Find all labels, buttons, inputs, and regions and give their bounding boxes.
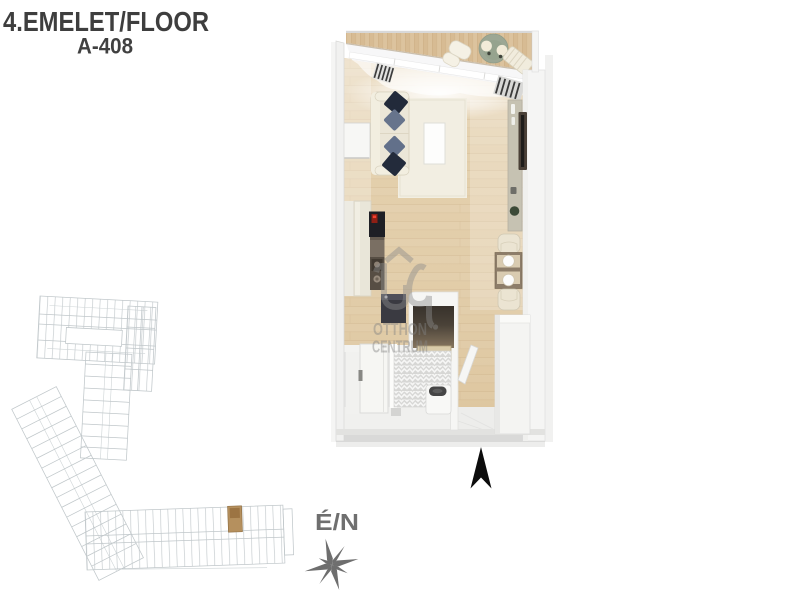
- svg-text:4.EMELET/FLOOR: 4.EMELET/FLOOR: [3, 6, 209, 37]
- svg-text:CENTRUM: CENTRUM: [372, 337, 428, 357]
- svg-text:A-408: A-408: [77, 34, 133, 59]
- svg-text:É/N: É/N: [315, 508, 359, 535]
